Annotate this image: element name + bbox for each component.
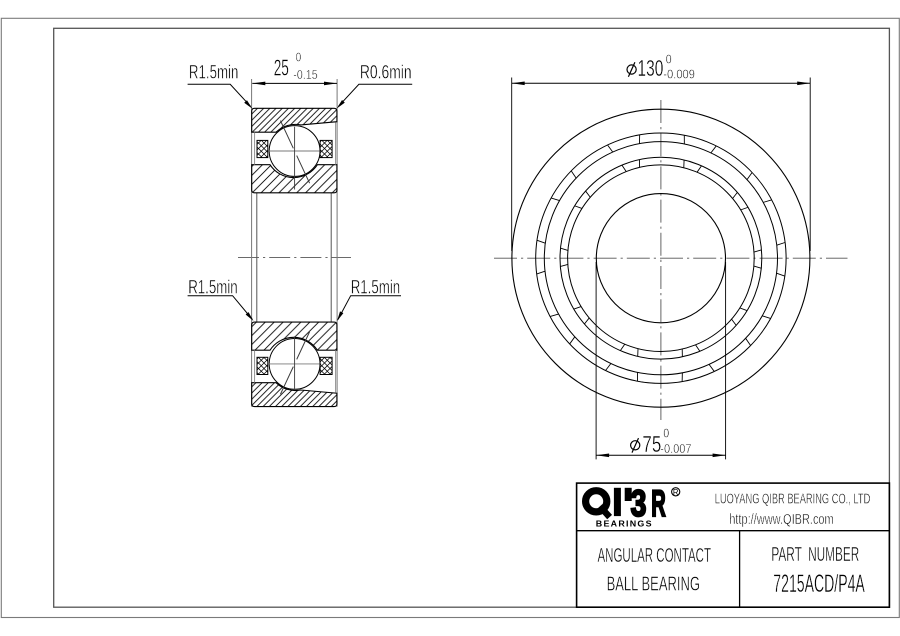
svg-text:R0.6min: R0.6min xyxy=(360,61,412,83)
svg-text:-0.15: -0.15 xyxy=(293,68,317,82)
svg-text:0: 0 xyxy=(666,52,672,66)
svg-text:75: 75 xyxy=(642,431,661,457)
svg-text:PART NUMBER: PART NUMBER xyxy=(771,544,859,566)
svg-text:-0.007: -0.007 xyxy=(660,442,691,456)
svg-text:R1.5min: R1.5min xyxy=(351,276,401,298)
svg-text:130: 130 xyxy=(638,55,664,81)
svg-text:http://www.QIBR.com: http://www.QIBR.com xyxy=(729,512,833,528)
svg-text:0: 0 xyxy=(296,51,301,65)
svg-text:BALL BEARING: BALL BEARING xyxy=(607,573,700,595)
svg-text:0: 0 xyxy=(663,427,669,441)
svg-text:R: R xyxy=(651,482,666,524)
svg-text:R: R xyxy=(673,488,679,497)
svg-text:LUOYANG QIBR BEARING CO., LTD: LUOYANG QIBR BEARING CO., LTD xyxy=(715,491,871,507)
svg-text:R1.5min: R1.5min xyxy=(188,276,238,298)
svg-text:BEARINGS: BEARINGS xyxy=(596,519,653,529)
svg-text:25: 25 xyxy=(274,54,289,80)
svg-text:ANGULAR CONTACT: ANGULAR CONTACT xyxy=(598,545,712,567)
svg-text:3: 3 xyxy=(631,482,647,524)
svg-text:7215ACD/P4A: 7215ACD/P4A xyxy=(773,570,865,598)
svg-text:R1.5min: R1.5min xyxy=(189,61,239,83)
svg-text:-0.009: -0.009 xyxy=(663,67,695,81)
